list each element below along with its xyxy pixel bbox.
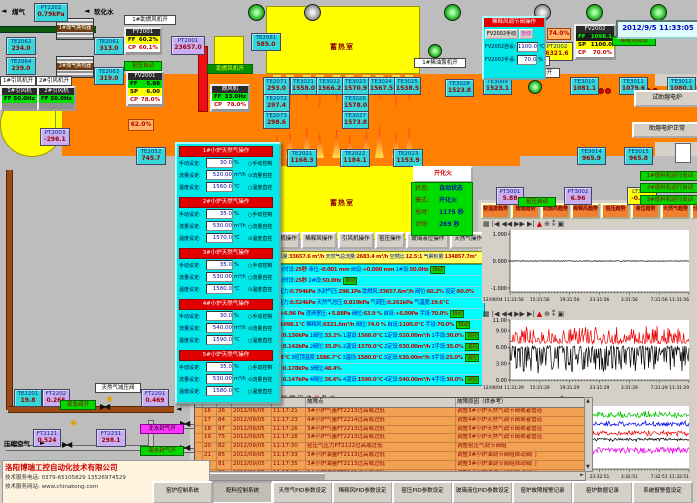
field-label: 手动设定:	[179, 364, 206, 371]
trend-button[interactable]: 稀释风趋势	[571, 203, 600, 219]
radio-manual[interactable]: ○手动控制	[248, 262, 272, 269]
manual-set-input[interactable]: 35.0	[206, 362, 233, 372]
nav-button[interactable]: 窑压PID参数设定	[392, 481, 453, 503]
dilution-valve-position: 74.0%	[547, 28, 571, 40]
status-text: 澄清室压:	[304, 311, 327, 317]
valve-icon[interactable]: ▶◀	[100, 404, 108, 410]
status-text: 液位:	[307, 267, 320, 273]
flow-set-input[interactable]: 530.00	[206, 272, 233, 282]
scroll-up-icon[interactable]: ▲	[586, 398, 590, 405]
alarm-row[interactable]: 22 81 2012/09/05 11:17:35 3#小炉油量FT2113过高…	[195, 461, 585, 470]
alarm-row[interactable]: 19 75 2012/09/05 11:17:28 3#小炉气量FT2213过高…	[195, 434, 585, 443]
field-label: FV2002自设:	[485, 43, 516, 50]
flow-set-input[interactable]: 530.00	[206, 374, 233, 384]
nav-button[interactable]: 玻璃液位PID参数设定	[452, 481, 513, 503]
status-text: 33.2%	[324, 333, 341, 339]
status-text: 助燃风:	[361, 289, 379, 295]
flue-damper-position: 62.0%	[128, 119, 154, 131]
svg-text:11:32:51: 11:32:51	[669, 474, 689, 480]
row-fault-cause: 调整4#小炉天然气调节阀或者管道	[456, 417, 589, 425]
row-date: 2012/09/05	[232, 408, 272, 416]
north-water-seal-badge: 北水封气开	[140, 424, 184, 434]
unit: ℃	[233, 184, 248, 190]
radio-label: 流量自控	[252, 377, 272, 383]
value: 585.0	[257, 42, 276, 48]
auto-setpoint-row: FV2002自设: 1100.0 ℃	[484, 40, 544, 53]
gas-operation-popup: 1#小炉天然气操作 手动设定: 30.0 % ○手动控制 流量设定: 520.0…	[175, 142, 281, 404]
status-line: 2压力:0.142kPa 2阀位:35.0% 2温设:1570.0℃ 2定设:5…	[268, 342, 484, 353]
radio-label: 手动控制	[252, 263, 272, 269]
row-fault-point: 3#小炉气量FT2213过高或过低	[306, 408, 456, 416]
row-marker	[195, 417, 203, 425]
status-text: 540.00m³/h	[399, 377, 430, 383]
controller-tag: FV2002	[576, 26, 614, 33]
nav-button[interactable]: 天然气PID参数设定	[272, 481, 333, 503]
radio-temp-direct[interactable]: ⊙温度直控	[248, 235, 272, 242]
svg-text:0.00: 0.00	[496, 378, 507, 384]
flame-reversal-button[interactable]: 开化火	[413, 166, 473, 183]
status-text: 0.178kPa	[283, 366, 308, 372]
status-line: 1压力:0.136kPa 1阀位:33.2% 1温设:1560.0℃ 1定设:5…	[268, 331, 484, 342]
status-text: 520.00m³/h	[399, 333, 430, 339]
status-text: 1570.0℃	[358, 344, 383, 350]
value: -296.1	[44, 137, 65, 143]
value: 965.8	[629, 156, 648, 162]
controller-tag: 鼓风机	[212, 86, 248, 93]
unit: %	[233, 262, 248, 268]
field-label: 流量设定:	[179, 223, 206, 230]
status-text: 70.0%	[437, 322, 454, 328]
alarm-row[interactable]: 21 85 2012/09/05 11:17:33 3#小炉油量FT2113过高…	[195, 452, 585, 461]
alarm-row[interactable]: 16 26 2012/09/05 11:17:21 3#小炉气量FT2213过高…	[195, 408, 585, 417]
radio-manual[interactable]: ○手动控制	[248, 364, 272, 371]
combustion-summary-bar: 助燃风量:33657.6 m³/h 天然气总流量:2683.4 m³/h 空燃比…	[267, 251, 485, 264]
gas-pressure-reducer-label: 天然气减压阀	[95, 383, 141, 393]
unit: ℃	[233, 337, 248, 343]
row-marker	[195, 443, 203, 451]
svg-text:23:32:51: 23:32:51	[590, 474, 610, 480]
status-text: 2阀位:	[308, 344, 324, 350]
status-text: 134857.7m³	[445, 254, 477, 260]
manual-set-input[interactable]: 30.0	[206, 158, 233, 168]
radio-temp-direct[interactable]: ○温度直控	[248, 388, 272, 395]
radio-label: 温度直控	[252, 389, 272, 395]
row-time: 11:17:21	[272, 408, 306, 416]
temp-set-row: 温度设定: 1590.0 ℃ ○温度直控	[179, 334, 273, 346]
status-text: 1590.0℃	[358, 377, 383, 383]
radio-label: 温度直控	[252, 287, 272, 293]
field-label: 流量设定:	[179, 376, 206, 383]
flow-set-input[interactable]: 530.00	[206, 221, 233, 231]
trend-button[interactable]: 窑压趋势	[601, 203, 630, 219]
controller-tag: FV2001	[128, 73, 162, 80]
value: 1570.9	[344, 86, 367, 92]
value: 1523.8	[448, 88, 471, 94]
row-seq: 21	[203, 452, 217, 460]
value: 1081.1	[573, 86, 596, 92]
scroll-down-icon[interactable]: ▼	[586, 464, 590, 471]
row-fault-cause: 调整3#小炉天然气调节阀或者管道	[456, 426, 589, 434]
field-label: 流量设定:	[179, 172, 206, 179]
gas-panel-section: 2#小炉天然气操作 手动设定: 35.0 % ○手动控制 流量设定: 530.0…	[179, 197, 273, 246]
flow-set-input[interactable]: 520.00	[206, 170, 233, 180]
nav-button[interactable]: 窑炉控制系统	[152, 481, 213, 503]
flow-set-row: 流量设定: 530.00 m³/h ⊙流量自控	[179, 373, 273, 385]
status-text: 0.524kPa	[290, 300, 315, 306]
value: 1558.0	[292, 86, 315, 92]
manual-setpoint-input[interactable]: 70.0	[517, 55, 538, 65]
manual-set-input[interactable]: 35.0	[206, 209, 233, 219]
controller-row: FF1098.1	[576, 33, 614, 41]
status-text: 阀位:	[350, 311, 363, 317]
svg-text:6.00: 6.00	[496, 345, 507, 351]
status-text: 流控	[465, 376, 479, 384]
status-text: 63.9 %	[363, 311, 382, 317]
fan-status-yf2: 2#引风机 FF 50.0Hz	[37, 86, 76, 111]
row-marker	[195, 426, 203, 434]
section-title: 1#小炉天然气操作	[179, 146, 273, 157]
status-line: 北换火时设:25秒 液位:-0.001 mm 自设:+0.000 mm 1#设:…	[268, 265, 484, 276]
radio-label: 温度直控	[252, 338, 272, 344]
temp-set-input[interactable]: 1580.0	[206, 386, 233, 396]
row-seq: 16	[203, 408, 217, 416]
param-value: 70.0%	[593, 49, 612, 57]
fan-icon	[248, 4, 265, 21]
comb-fan-running-badge: 助燃风机开	[207, 64, 253, 74]
label: 模式:	[415, 195, 439, 207]
radio-label: 手动控制	[252, 161, 272, 167]
radio-flow-auto[interactable]: ⊙流量自控	[248, 172, 272, 179]
row-fault-cause: 调整3#小炉油调节阀组自动阀门	[456, 452, 589, 460]
gas-panel-section: 3#小炉天然气操作 手动设定: 35.0 % ○手动控制 流量设定: 530.0…	[179, 248, 273, 297]
unit: m³/h	[233, 274, 248, 280]
instrument-TE2062: TE2062234.0	[6, 37, 36, 55]
status-text: 3定设:	[382, 355, 398, 361]
value: 269 秒	[439, 219, 460, 231]
row-fault-cause: 调整窑压气调节阀组	[456, 443, 589, 451]
row-time: 11:17:33	[272, 452, 306, 460]
controller-row: CP70.0%	[576, 49, 614, 57]
valve-icon[interactable]: ▶◀	[62, 442, 70, 448]
row-id: 97	[217, 426, 232, 434]
air-arrow-icon: ►	[40, 440, 45, 447]
radio-label: 手动控制	[252, 365, 272, 371]
auto-mode-button[interactable]: 自动	[519, 29, 533, 39]
value: 234.0	[12, 46, 31, 52]
svg-text:-1.000: -1.000	[491, 286, 507, 292]
test-booster-button[interactable]: 试助熔电炉	[634, 90, 697, 107]
controller-row: CP78.0%	[128, 96, 162, 104]
auto-setpoint-input[interactable]: 1100.0	[517, 42, 538, 52]
dilution-fan-panel: 稀释风调节阀操作 FV2002手动 自动 FV2002自设: 1100.0 ℃ …	[482, 16, 546, 80]
nav-button[interactable]: 稀释风PID参数设定	[332, 481, 393, 503]
param-value: 1098.1	[591, 33, 612, 41]
radio-temp-direct[interactable]: ⊙温度直控	[248, 286, 272, 293]
status-lines-block: 北换火时设:25秒 液位:-0.001 mm 自设:+0.000 mm 1#设:…	[267, 264, 485, 386]
instrument-TE2063: TE2063319.0	[94, 67, 124, 85]
row-fault-point: 3#小炉油量FT2113过高或过低	[306, 452, 456, 460]
radio-manual[interactable]: ○手动控制	[248, 313, 272, 320]
instrument-TE2073: TE2073298.6	[263, 111, 290, 129]
manual-set-input[interactable]: 35.0	[206, 260, 233, 270]
operation-button[interactable]: 窑压操作	[375, 232, 406, 249]
radio-flow-auto[interactable]: ⊙流量自控	[248, 376, 272, 383]
panel-title: 稀释风调节阀操作	[484, 18, 544, 27]
svg-text:1.000: 1.000	[493, 232, 507, 238]
alarm-row[interactable]: 18 97 2012/09/05 11:17:26 3#小炉气量FT2213过高…	[195, 426, 585, 435]
gas-panel-section: 4#小炉天然气操作 手动设定: 30.0 % ○手动控制 流量设定: 540.0…	[179, 299, 273, 348]
svg-text:12/09/04 11:31:56: 12/09/04 11:31:56	[483, 297, 524, 303]
status-text: 自设:	[386, 322, 399, 328]
svg-text:7:31:56: 7:31:56	[651, 297, 668, 303]
svg-text:11.00: 11.00	[493, 318, 507, 324]
temp-set-row: 温度设定: 1570.0 ℃ ⊙温度直控	[179, 232, 273, 244]
value: 23657.0	[174, 45, 201, 51]
status-text: 298.1Pa	[339, 289, 361, 295]
field-label: 手动设定:	[179, 313, 206, 320]
softened-water-label: 软化水	[94, 6, 114, 16]
svg-text:15:31:56: 15:31:56	[530, 297, 550, 303]
row-time: 11:17:35	[272, 461, 306, 469]
chart2-toolbar: ▦|◀◀◀▶▶▶|▲⊕⁑▣	[482, 306, 565, 316]
svg-text:19:31:56: 19:31:56	[560, 297, 580, 303]
svg-text:23:31:56: 23:31:56	[590, 297, 610, 303]
param-value: 60.1%	[139, 44, 158, 52]
speed-value: FF 50.0Hz	[41, 95, 72, 103]
gas-panel-section: 5#小炉天然气操作 手动设定: 35.0 % ○手动控制 流量设定: 530.0…	[179, 350, 273, 399]
status-text: 1温设:	[341, 333, 357, 339]
radio-temp-direct[interactable]: ○温度直控	[248, 184, 272, 191]
row-date: 2012/09/05	[232, 417, 272, 425]
svg-text:7:32:51: 7:32:51	[651, 474, 668, 480]
status-text: 流控	[465, 332, 479, 340]
controller-blower: 鼓风机 FF33.0Hz CP78.0%	[210, 84, 250, 112]
unit: m³/h	[233, 325, 248, 331]
status-text: 设定:	[444, 289, 457, 295]
row-marker	[195, 452, 203, 460]
radio-flow-auto[interactable]: ○流量自控	[248, 274, 272, 281]
param: CP	[130, 96, 138, 104]
value: 965.9	[582, 156, 601, 162]
section-title: 5#小炉天然气操作	[179, 350, 273, 361]
charger1-auto-badge: 1#投料机运行自动	[640, 171, 697, 181]
row-id: 82	[217, 443, 232, 451]
svg-text:11:31:29: 11:31:29	[669, 385, 689, 391]
operation-button[interactable]: 稀释风操作	[301, 232, 337, 249]
value: 297.4	[267, 103, 286, 109]
instrument-TE2072: TE2072297.4	[263, 94, 290, 112]
value: 1168.3	[290, 158, 313, 164]
value: 745.7	[142, 156, 161, 162]
value: 1566.2	[318, 86, 341, 92]
controller-row: SP6.00	[128, 88, 162, 96]
timer-row: 计时:269 秒	[412, 219, 472, 231]
row-fault-cause: 调整3#小炉天然气调节阀或者管道	[456, 408, 589, 416]
row-time: 11:17:26	[272, 426, 306, 434]
natural-gas-main-pipe	[6, 170, 13, 410]
manual-mode-button[interactable]: FV2002手动	[485, 29, 518, 39]
row-time: 11:17:28	[272, 434, 306, 442]
status-text: 自动	[456, 321, 470, 329]
svg-text:23:31:29: 23:31:29	[590, 385, 610, 391]
status-line: 578.8℃ 3碹顶温度:1586.7℃ 3温设:1580.0℃ 3定设:530…	[268, 353, 484, 364]
comb-fan1-open-label: 1#助燃风机开	[124, 15, 176, 25]
trend-button[interactable]: 天然气趋势	[661, 203, 690, 219]
label: 计时:	[415, 219, 439, 231]
value: 0.469	[146, 398, 165, 404]
radio-temp-direct[interactable]: ○温度直控	[248, 337, 272, 344]
nav-button[interactable]: 窑炉数据记录	[572, 481, 633, 503]
mode-status-panel: 状态:自动状态 模式:开化火 总时:1175 秒 计时:269 秒	[411, 182, 473, 236]
nav-button[interactable]: 配料控制系统	[212, 481, 273, 503]
status-text: 2定设:	[383, 344, 399, 350]
row-fault-point: 3#小炉油量FT2113过高或过低	[306, 461, 456, 469]
operation-button[interactable]: 引风机操作	[338, 232, 374, 249]
controller-row: CP60.1%	[126, 44, 160, 52]
level-trend-chart: 1.0000.000-1.00012/09/04 11:31:5615:31:5…	[482, 227, 694, 303]
regenerator-south-label: 蓄热室	[330, 198, 354, 208]
instrument-TE3022: TE30221566.2	[316, 77, 343, 95]
manual-set-input[interactable]: 30.0	[206, 311, 233, 321]
trend-button[interactable]: 分析气趋势	[691, 203, 697, 219]
row-marker	[195, 434, 203, 442]
flow-set-row: 流量设定: 540.00 m³/h ⊙流量自控	[179, 322, 273, 334]
controller-row: CP78.0%	[212, 101, 248, 109]
instrument-TE3010: TE30101081.1	[570, 77, 599, 95]
temp-set-input[interactable]: 1570.0	[206, 233, 233, 243]
row-fault-point: 3#小炉气量FT2213过高或过低	[306, 434, 456, 442]
status-line: 窑压:+6.96 Pa 澄清室压:+5.88Pa 阀位:63.9 % 自设:+6…	[268, 309, 484, 320]
row-id: 26	[217, 408, 232, 416]
row-seq: 18	[203, 426, 217, 434]
row-date: 2012/09/05	[232, 461, 272, 469]
svg-text:3.00: 3.00	[496, 361, 507, 367]
section-title: 3#小炉天然气操作	[179, 248, 273, 259]
svg-text:9.00: 9.00	[496, 329, 507, 335]
status-text: -0.001 mm	[320, 267, 349, 273]
instrument-PT2001: PT200123657.0	[171, 36, 205, 55]
trend-button[interactable]: 液位趋势	[631, 203, 660, 219]
status-text: +0.000 mm	[362, 267, 394, 273]
row-fault-point: 3#小炉气量FT2213过高或过低	[306, 426, 456, 434]
manual-set-row: 手动设定: 35.0 % ○手动控制	[179, 208, 273, 220]
status-text: 30.0%	[446, 333, 463, 339]
param: FF	[128, 36, 136, 44]
controller-row: FF5.88	[128, 80, 162, 88]
status-text: 4定设:	[383, 377, 399, 383]
alarm-vscrollbar[interactable]: ▲ ▼	[584, 397, 593, 472]
value: 1153.9	[396, 158, 419, 164]
field-label: 温度设定:	[179, 235, 206, 242]
controller-row: SP1100.0	[576, 41, 614, 49]
section-title: 2#小炉天然气操作	[179, 197, 273, 208]
status-text: 4阀位:	[308, 377, 324, 383]
status-text: 48.4%	[324, 366, 341, 372]
status-text: 自动	[343, 277, 357, 285]
value: 293.0	[267, 86, 286, 92]
section-title: 4#小炉天然气操作	[179, 299, 273, 310]
gas-arrow-icon: ◄	[1, 8, 6, 15]
status-text: 36.6%	[324, 377, 341, 383]
booster-normal-button[interactable]: 助熔电炉正常	[632, 122, 697, 138]
radio-flow-auto[interactable]: ○流量自控	[248, 223, 272, 230]
status-text: 1阀位:	[308, 333, 324, 339]
gas-panel-section: 1#小炉天然气操作 手动设定: 30.0 % ○手动控制 流量设定: 520.0…	[179, 146, 273, 195]
temp-set-input[interactable]: 1560.0	[206, 182, 233, 192]
value: 6.96	[571, 196, 586, 202]
row-seq: 20	[203, 443, 217, 451]
radio-flow-auto[interactable]: ⊙流量自控	[248, 325, 272, 332]
value: 1523.1	[486, 86, 509, 92]
alarm-row[interactable]: 17 84 2012/09/05 11:17:23 4#小炉气量FT2214过高…	[195, 417, 585, 426]
nav-button[interactable]: 系统报警值设定	[632, 481, 693, 503]
field-label: 流量设定:	[179, 325, 206, 332]
instrument-TE3028: TE30281523.8	[445, 79, 474, 97]
row-fault-cause: 调整3#小炉油调节阀组自动阀门	[456, 461, 589, 469]
scroll-right-icon[interactable]: ►	[580, 472, 584, 479]
water-arrow-icon: ◄	[84, 8, 89, 15]
unit: %	[538, 57, 543, 63]
row-fault-point: 窑压气压力PT2122过高或过低	[306, 443, 456, 451]
status-text: 4手设:	[430, 377, 446, 383]
row-id: 81	[217, 461, 232, 469]
status-text: 1580.0℃	[357, 355, 382, 361]
manual-set-row: 手动设定: 35.0 % ○手动控制	[179, 259, 273, 271]
status-line: 碹顶:1098.1℃ 稀释风:6321.6m³/h 阀位:74.0 % 自设:1…	[268, 320, 484, 331]
flow-set-input[interactable]: 540.00	[206, 323, 233, 333]
field-label: 手动设定:	[179, 160, 206, 167]
scroll-thumb[interactable]	[203, 473, 325, 480]
status-text: 自设:	[349, 267, 362, 273]
row-date: 2012/09/05	[232, 426, 272, 434]
alarm-hscrollbar[interactable]: ◄ ►	[194, 471, 586, 481]
status-text: 2温设:	[341, 344, 357, 350]
instrument-TE3027: TE30271573.8	[342, 111, 369, 129]
unit: m³/h	[233, 223, 248, 229]
field-label: 手动设定:	[179, 211, 206, 218]
status-text: 4温设:	[341, 377, 357, 383]
temp-set-row: 温度设定: 1560.0 ℃ ○温度直控	[179, 181, 273, 193]
status-text: 温控	[465, 343, 479, 351]
status-text: 33657.6 m³/h	[289, 254, 324, 260]
value: 313.0	[100, 46, 119, 52]
manual-set-row: 手动设定: 30.0 % ○手动控制	[179, 157, 273, 169]
status-text: 19.6℃	[431, 300, 449, 306]
instrument-TE3014: TE3014965.9	[577, 147, 606, 165]
field-label: 温度设定:	[179, 337, 206, 344]
nav-button[interactable]: 窑炉故障报警记录	[512, 481, 573, 503]
instrument-PT3002: PT30026.96	[564, 187, 592, 205]
radio-manual[interactable]: ○手动控制	[248, 211, 272, 218]
temp-set-input[interactable]: 1580.0	[206, 284, 233, 294]
alarm-row[interactable]: 20 82 2012/09/05 11:17:30 窑压气压力PT2122过高或…	[195, 443, 585, 452]
instrument-PT2003: PT2003-296.1	[40, 128, 70, 146]
instrument-FT2231: FT2231298.1	[96, 429, 126, 447]
sensor-dot-icon	[605, 88, 611, 94]
field-label: 手动设定:	[179, 262, 206, 269]
temp-set-row: 温度设定: 1580.0 ℃ ○温度直控	[179, 385, 273, 397]
unit: %	[233, 313, 248, 319]
total-time-row: 总时:1175 秒	[412, 207, 472, 219]
param: SP	[130, 88, 138, 96]
radio-manual[interactable]: ○手动控制	[248, 160, 272, 167]
field-label: FV2002手设:	[485, 56, 516, 63]
temp-set-input[interactable]: 1590.0	[206, 335, 233, 345]
status-text: 0.147kPa	[283, 377, 308, 383]
controller-row: FF60.2%	[126, 36, 160, 44]
row-marker	[195, 408, 203, 416]
fan-icon	[444, 4, 461, 21]
